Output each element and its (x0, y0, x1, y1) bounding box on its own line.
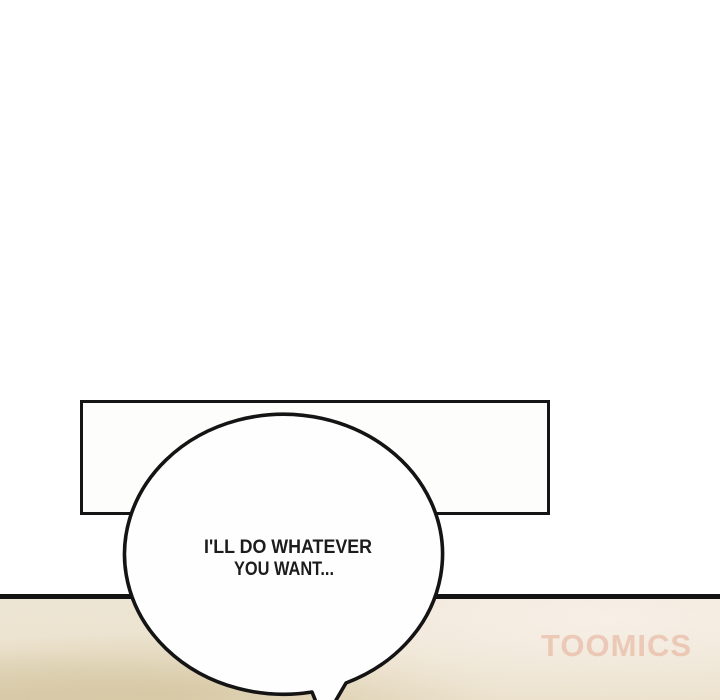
comic-page: TOOMICS I'LL DO WHATEVER YOU WANT... (0, 0, 720, 700)
speech-bubble-text-line-2: YOU WANT... (234, 559, 334, 580)
speech-bubble-text-line-1: I'LL DO WHATEVER (204, 537, 372, 558)
bubble-layer: I'LL DO WHATEVER YOU WANT... (0, 0, 720, 700)
